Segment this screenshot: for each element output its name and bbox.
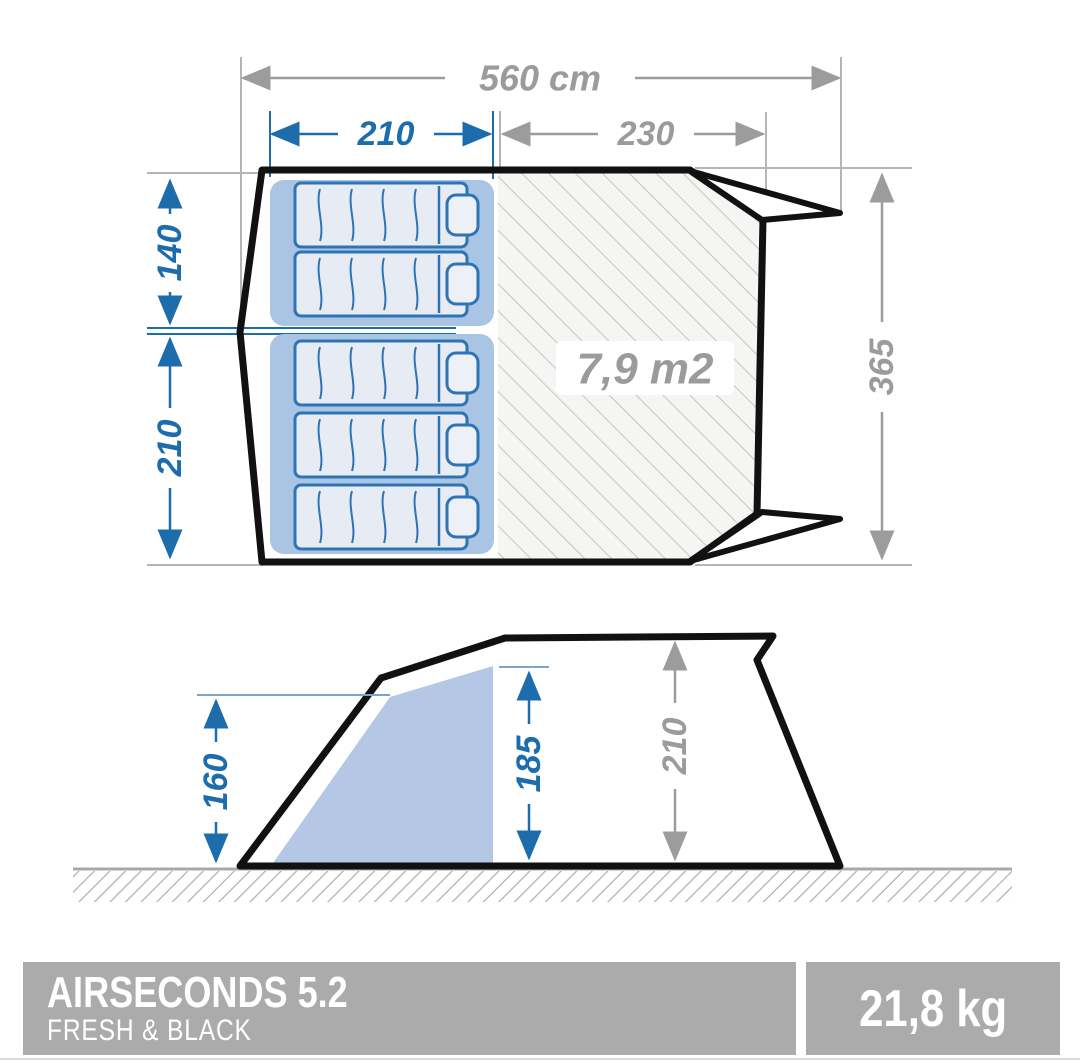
product-title: AIRSECONDS 5.2 bbox=[47, 971, 661, 1015]
dim-max-height: 210 bbox=[654, 643, 696, 859]
product-info-bar: AIRSECONDS 5.2 FRESH & BLACK 21,8 kg bbox=[0, 962, 1080, 1055]
floor-plan-view: 7,9 m2 560 cm 210 230 140 bbox=[147, 56, 912, 566]
dim-bedroom-width-label: 210 bbox=[357, 115, 415, 153]
bottom-edge-line bbox=[0, 1058, 1080, 1060]
dim-living-width-label: 230 bbox=[617, 115, 675, 153]
dim-bedroom-top-depth: 140 bbox=[149, 181, 191, 323]
dim-total-width-label: 560 cm bbox=[479, 58, 601, 99]
dim-cabin-height-label: 185 bbox=[510, 735, 548, 793]
dim-bedroom-bottom-depth: 210 bbox=[149, 339, 191, 557]
mattress-icon bbox=[295, 485, 478, 549]
dim-total-width: 560 cm bbox=[243, 56, 839, 99]
product-name-block: AIRSECONDS 5.2 FRESH & BLACK bbox=[23, 962, 796, 1055]
dim-cabin-height: 185 bbox=[499, 667, 550, 858]
product-subtitle: FRESH & BLACK bbox=[47, 1015, 661, 1047]
diagram-drawing: 7,9 m2 560 cm 210 230 140 bbox=[0, 0, 1080, 955]
dim-bedroom-width: 210 bbox=[272, 114, 490, 154]
living-area-label: 7,9 m2 bbox=[577, 345, 715, 394]
dim-max-height-label: 210 bbox=[656, 718, 694, 776]
dim-living-width: 230 bbox=[503, 114, 763, 154]
dim-bedroom-top-depth-label: 140 bbox=[151, 225, 189, 282]
mattress-icon bbox=[295, 183, 478, 247]
dim-awning-height-label: 160 bbox=[197, 754, 235, 811]
dim-total-depth-label: 365 bbox=[863, 338, 901, 396]
product-weight-block: 21,8 kg bbox=[806, 962, 1060, 1055]
mattress-icon bbox=[295, 413, 478, 477]
ground-hatch bbox=[73, 871, 1012, 902]
tent-dimension-diagram: 7,9 m2 560 cm 210 230 140 bbox=[0, 0, 1080, 1063]
side-elevation-view: 160 185 210 bbox=[73, 636, 1012, 902]
mattress-icon bbox=[295, 341, 478, 405]
mattress-icon bbox=[295, 252, 478, 316]
dim-total-depth: 365 bbox=[861, 175, 903, 558]
product-weight: 21,8 kg bbox=[859, 979, 1007, 1039]
dim-bedroom-bottom-depth-label: 210 bbox=[151, 420, 189, 478]
